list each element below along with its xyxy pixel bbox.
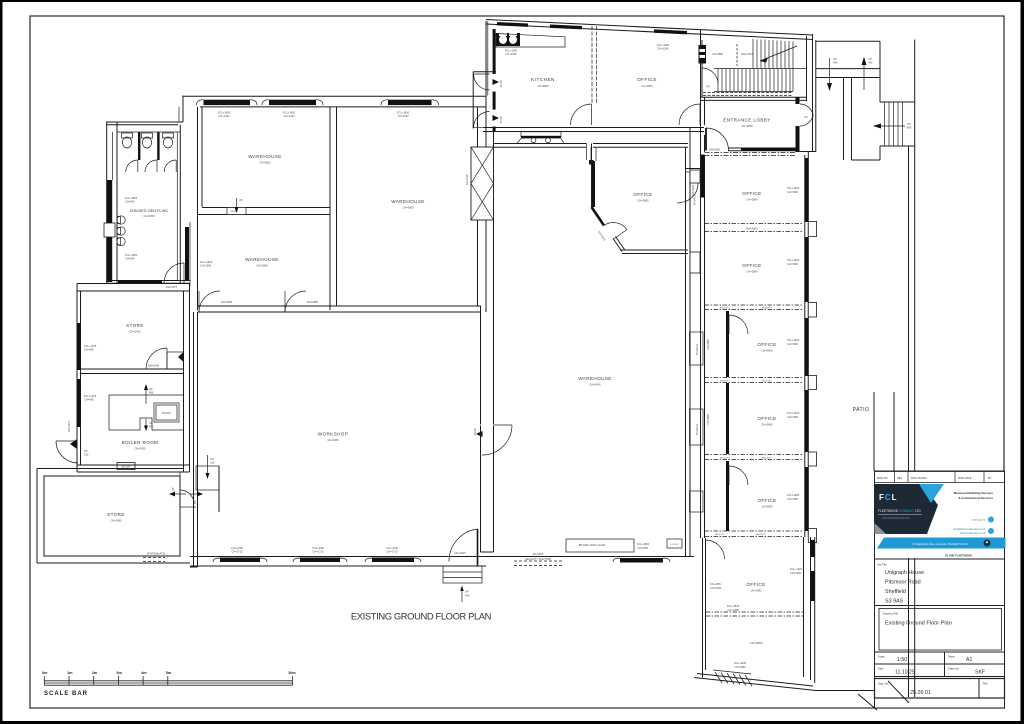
svg-text:BHxPxx: BHxPxx bbox=[231, 211, 238, 213]
svg-text:PATIO: PATIO bbox=[853, 407, 870, 413]
svg-text:SFxPDLBx4736: SFxPDLBx4736 bbox=[147, 552, 166, 556]
svg-text:CH=2695: CH=2695 bbox=[110, 519, 122, 523]
svg-text:www.fleetwoodconsult.co.uk: www.fleetwoodconsult.co.uk bbox=[882, 517, 910, 520]
svg-text:LOW BC: LOW BC bbox=[670, 544, 679, 546]
svg-text:CH=1080: CH=1080 bbox=[734, 665, 746, 669]
svg-text:2 Chapeltown Rise, Hanscote, S: 2 Chapeltown Rise, Hanscote, Sheffield S… bbox=[912, 542, 967, 546]
svg-text:FCL+1SB: FCL+1SB bbox=[231, 546, 243, 550]
svg-text:BD 6040 1190mmH/2H: BD 6040 1190mmH/2H bbox=[579, 543, 606, 547]
svg-text:450: 450 bbox=[149, 425, 154, 429]
svg-text:BH=1520: BH=1520 bbox=[465, 174, 469, 185]
svg-text:BHxDUTY: BHxDUTY bbox=[762, 381, 773, 383]
svg-text:STORE: STORE bbox=[126, 323, 144, 328]
svg-text:CH=2860: CH=2860 bbox=[761, 349, 773, 353]
svg-text:OFFICE: OFFICE bbox=[757, 342, 776, 347]
svg-text:REV: REV bbox=[897, 476, 903, 480]
svg-text:FCL+1285: FCL+1285 bbox=[657, 43, 670, 47]
svg-text:Measured Building Surveys: Measured Building Surveys bbox=[954, 491, 994, 495]
svg-text:KITCHEN: KITCHEN bbox=[531, 77, 555, 82]
svg-text:UP: UP bbox=[465, 590, 469, 594]
svg-text:CH=2860: CH=2860 bbox=[761, 423, 773, 427]
svg-text:4m: 4m bbox=[141, 671, 147, 675]
svg-text:CH=1280: CH=1280 bbox=[505, 52, 517, 56]
svg-text:CH=2865: CH=2865 bbox=[750, 641, 763, 645]
svg-text:CH=1590: CH=1590 bbox=[787, 497, 799, 501]
svg-text:DH=2865: DH=2865 bbox=[221, 300, 233, 304]
svg-text:& Architectural Services: & Architectural Services bbox=[958, 496, 993, 500]
svg-text:UP: UP bbox=[804, 115, 808, 119]
svg-text:BHxDUTY: BHxDUTY bbox=[762, 308, 773, 310]
svg-text:BHxDUTY: BHxDUTY bbox=[720, 458, 731, 460]
svg-text:CH=1715: CH=1715 bbox=[312, 550, 324, 554]
svg-text:SECURITY SHUTTER: SECURITY SHUTTER bbox=[525, 557, 551, 561]
svg-text:DISUSED GENTS WC: DISUSED GENTS WC bbox=[130, 209, 169, 213]
svg-text:UP: UP bbox=[706, 85, 710, 89]
svg-text:CH=2425: CH=2425 bbox=[134, 447, 146, 451]
svg-text:CH=3665: CH=3665 bbox=[402, 206, 414, 210]
svg-text:865: 865 bbox=[907, 126, 912, 130]
svg-text:MOD NO: MOD NO bbox=[877, 476, 888, 480]
svg-text:BOILER: BOILER bbox=[162, 412, 171, 415]
svg-text:Job Title: Job Title bbox=[877, 563, 887, 567]
svg-text:CH=2860: CH=2860 bbox=[637, 199, 649, 203]
svg-text:Drawn by: Drawn by bbox=[948, 667, 960, 671]
svg-text:UP 40: UP 40 bbox=[499, 80, 503, 88]
svg-text:CH=1590: CH=1590 bbox=[787, 342, 799, 346]
svg-text:FCL+1SB: FCL+1SB bbox=[386, 546, 398, 550]
svg-text:B HATCH: B HATCH bbox=[693, 194, 697, 205]
svg-text:FCL+1600: FCL+1600 bbox=[218, 111, 231, 115]
svg-text:MOD DATE: MOD DATE bbox=[958, 476, 972, 480]
svg-text:FCL+1600: FCL+1600 bbox=[397, 111, 410, 115]
svg-text:FCL+1620: FCL+1620 bbox=[790, 567, 803, 571]
svg-text:UP 40: UP 40 bbox=[499, 116, 503, 124]
svg-text:5m: 5m bbox=[166, 671, 172, 675]
svg-text:445: 445 bbox=[465, 594, 470, 598]
svg-text:BHxDUTY: BHxDUTY bbox=[715, 534, 726, 536]
svg-text:CH=1590: CH=1590 bbox=[787, 190, 799, 194]
svg-text:Sheet: Sheet bbox=[948, 655, 955, 659]
svg-text:11.10.25: 11.10.25 bbox=[895, 670, 915, 676]
svg-text:CH=2860: CH=2860 bbox=[746, 198, 758, 202]
svg-text:10m: 10m bbox=[288, 671, 296, 675]
svg-text:FCL+1620: FCL+1620 bbox=[787, 186, 800, 190]
svg-text:25.26.01: 25.26.01 bbox=[910, 690, 931, 696]
svg-text:CH=1285: CH=1285 bbox=[657, 47, 669, 51]
svg-text:Drawing Title: Drawing Title bbox=[883, 612, 899, 616]
svg-text:CH=2865: CH=2865 bbox=[750, 589, 762, 593]
svg-text:BHxDUTY: BHxDUTY bbox=[720, 308, 731, 310]
svg-text:FCL+1800: FCL+1800 bbox=[125, 196, 138, 200]
svg-text:BHxDUTY: BHxDUTY bbox=[720, 381, 731, 383]
svg-text:CH=1590: CH=1590 bbox=[787, 415, 799, 419]
svg-text:(?) 0487 FLEETWOOD: (?) 0487 FLEETWOOD bbox=[945, 554, 972, 558]
svg-text:CH=2465: CH=2465 bbox=[327, 438, 339, 442]
svg-text:OFFICE: OFFICE bbox=[757, 416, 776, 421]
svg-text:CH=2860: CH=2860 bbox=[706, 338, 710, 350]
svg-text:OFFICE: OFFICE bbox=[742, 263, 761, 268]
svg-text:CH=2860: CH=2860 bbox=[537, 84, 549, 88]
svg-text:SKF: SKF bbox=[975, 670, 985, 676]
svg-text:FCL+1620: FCL+1620 bbox=[787, 338, 800, 342]
svg-text:WAREHOUSE: WAREHOUSE bbox=[248, 154, 282, 159]
svg-text:DH=2065: DH=2065 bbox=[454, 551, 466, 555]
svg-text:UP: UP bbox=[84, 449, 88, 453]
svg-text:Dwg. No.: Dwg. No. bbox=[878, 682, 889, 686]
svg-text:CH=690: CH=690 bbox=[125, 200, 135, 204]
svg-text:FLEETWOOD CONSULT LTD: FLEETWOOD CONSULT LTD bbox=[878, 509, 921, 513]
svg-text:FCL+1620: FCL+1620 bbox=[787, 411, 800, 415]
svg-text:WORKSHOP: WORKSHOP bbox=[318, 432, 349, 437]
svg-text:CH=1590: CH=1590 bbox=[787, 262, 799, 266]
svg-text:Riser 50H: Riser 50H bbox=[741, 52, 753, 56]
svg-text:210: 210 bbox=[84, 453, 89, 457]
svg-text:UP: UP bbox=[149, 421, 153, 425]
svg-text:ENTRANCE LOBBY: ENTRANCE LOBBY bbox=[723, 118, 770, 123]
svg-text:0m: 0m bbox=[42, 671, 48, 675]
svg-text:FCL+1860: FCL+1860 bbox=[637, 542, 650, 546]
svg-text:CH=1080: CH=1080 bbox=[727, 608, 739, 612]
svg-text:0770 68 73: 0770 68 73 bbox=[972, 518, 986, 522]
svg-text:WAREHOUSE: WAREHOUSE bbox=[245, 257, 279, 262]
svg-text:FCL+1SB: FCL+1SB bbox=[312, 546, 324, 550]
svg-text:DH=2865: DH=2865 bbox=[307, 300, 319, 304]
svg-text:UP: UP bbox=[171, 487, 175, 491]
svg-text:685: 685 bbox=[149, 391, 154, 395]
svg-text:FCL+1620: FCL+1620 bbox=[787, 258, 800, 262]
svg-text:OFFICE: OFFICE bbox=[637, 77, 657, 82]
svg-text:WAREHOUSE: WAREHOUSE bbox=[578, 376, 612, 381]
svg-text:2m: 2m bbox=[92, 671, 98, 675]
svg-text:B HATCH: B HATCH bbox=[695, 344, 699, 355]
svg-text:WAREHOUSE: WAREHOUSE bbox=[391, 199, 425, 204]
svg-text:FCL+1600: FCL+1600 bbox=[283, 111, 296, 115]
svg-text:OFFICE: OFFICE bbox=[633, 192, 652, 197]
svg-text:FCL+1845: FCL+1845 bbox=[734, 661, 747, 665]
svg-text:CH=2860: CH=2860 bbox=[706, 413, 710, 425]
svg-text:OFFICE: OFFICE bbox=[742, 191, 761, 196]
svg-text:FCL+1845: FCL+1845 bbox=[200, 260, 213, 264]
svg-text:FCL+1620: FCL+1620 bbox=[787, 493, 800, 497]
svg-text:CH=1590: CH=1590 bbox=[790, 571, 802, 575]
svg-text:DH=1975: DH=1975 bbox=[166, 285, 178, 289]
svg-text:CH=2425: CH=2425 bbox=[129, 330, 141, 334]
svg-text:FCL: FCL bbox=[879, 493, 898, 502]
svg-text:UP: UP bbox=[149, 387, 153, 391]
svg-text:BHxDUTY: BHxDUTY bbox=[756, 534, 767, 536]
svg-text:FCL+1845: FCL+1845 bbox=[727, 604, 740, 608]
svg-text:CH=1430: CH=1430 bbox=[218, 114, 230, 118]
svg-text:CH=690: CH=690 bbox=[125, 257, 135, 261]
svg-text:1:50: 1:50 bbox=[897, 657, 907, 663]
svg-text:SFx4256: SFx4256 bbox=[533, 552, 544, 556]
svg-text:CH=2060: CH=2060 bbox=[637, 546, 649, 550]
svg-text:CH=2350: CH=2350 bbox=[143, 214, 155, 218]
svg-text:CH=1430: CH=1430 bbox=[283, 114, 295, 118]
svg-text:CH=2860: CH=2860 bbox=[641, 84, 653, 88]
svg-text:UP: UP bbox=[239, 198, 243, 202]
svg-text:UP: UP bbox=[833, 57, 837, 61]
svg-text:B HATCH: B HATCH bbox=[695, 424, 699, 435]
svg-text:Date: Date bbox=[878, 667, 884, 671]
svg-text:CH=3640: CH=3640 bbox=[589, 383, 601, 387]
svg-text:FCL+845: FCL+845 bbox=[710, 582, 721, 586]
svg-text:CH=2860: CH=2860 bbox=[741, 124, 753, 128]
svg-text:UP 95: UP 95 bbox=[473, 428, 477, 436]
svg-text:BOILER ROOM: BOILER ROOM bbox=[122, 440, 159, 445]
svg-text:DH=1590: DH=1590 bbox=[709, 148, 721, 152]
svg-text:UP: UP bbox=[210, 457, 214, 461]
svg-text:BHxDUTY: BHxDUTY bbox=[762, 458, 773, 460]
svg-text:UP: UP bbox=[868, 57, 872, 61]
svg-text:CH=2865: CH=2865 bbox=[256, 264, 268, 268]
svg-text:210: 210 bbox=[210, 461, 215, 465]
svg-text:SCALE BAR: SCALE BAR bbox=[44, 691, 88, 697]
svg-text:FCL+1575: FCL+1575 bbox=[84, 394, 97, 398]
svg-text:STORE: STORE bbox=[107, 512, 125, 517]
svg-text:UP: UP bbox=[907, 122, 911, 126]
svg-text:CH=2860: CH=2860 bbox=[746, 270, 758, 274]
svg-text:FCL+1800: FCL+1800 bbox=[125, 253, 138, 257]
svg-text:OFFICE: OFFICE bbox=[746, 582, 765, 587]
svg-text:CH=685: CH=685 bbox=[84, 348, 94, 352]
svg-text:450: 450 bbox=[833, 61, 838, 65]
svg-text:CH=685: CH=685 bbox=[84, 398, 94, 402]
svg-text:1m: 1m bbox=[67, 671, 73, 675]
svg-text:Unigraph House: Unigraph House bbox=[885, 570, 924, 576]
svg-text:3m: 3m bbox=[116, 671, 122, 675]
svg-text:CH=2880: CH=2880 bbox=[712, 52, 724, 56]
svg-text:info@fleetwoodstudio.co.uk: info@fleetwoodstudio.co.uk bbox=[953, 527, 985, 531]
svg-text:Sheffield: Sheffield bbox=[885, 589, 906, 595]
svg-text:Existing Ground Floor Plan: Existing Ground Floor Plan bbox=[885, 621, 952, 627]
svg-text:EXISTING GROUND FLOOR PLAN: EXISTING GROUND FLOOR PLAN bbox=[351, 611, 491, 622]
svg-text:A1: A1 bbox=[966, 657, 972, 663]
svg-text:S3 9AS: S3 9AS bbox=[885, 599, 904, 605]
svg-text:CH=1960: CH=1960 bbox=[200, 264, 212, 268]
svg-text:FCL+1575: FCL+1575 bbox=[84, 344, 97, 348]
svg-text:CH=1715: CH=1715 bbox=[386, 550, 398, 554]
svg-text:CH=1715: CH=1715 bbox=[231, 550, 243, 554]
svg-text:CH=1630: CH=1630 bbox=[397, 114, 409, 118]
svg-text:UP: UP bbox=[193, 500, 197, 504]
svg-text:BY: BY bbox=[988, 476, 992, 480]
svg-text:CH=2860: CH=2860 bbox=[761, 505, 773, 509]
svg-text:MOD NOTES: MOD NOTES bbox=[911, 476, 927, 480]
svg-text:Rev: Rev bbox=[983, 682, 988, 686]
svg-text:DH=1975: DH=1975 bbox=[67, 420, 71, 432]
svg-text:BH=2060: BH=2060 bbox=[747, 227, 758, 231]
svg-text:DH=1945: DH=1945 bbox=[148, 364, 160, 368]
svg-text:CH=4105: CH=4105 bbox=[710, 586, 722, 590]
svg-text:fleetwoodstudio.co.uk: fleetwoodstudio.co.uk bbox=[960, 531, 986, 535]
svg-text:450: 450 bbox=[868, 61, 873, 65]
svg-text:Scale: Scale bbox=[878, 655, 885, 659]
svg-text:CH=2865: CH=2865 bbox=[259, 161, 271, 165]
svg-text:FCL+1280: FCL+1280 bbox=[505, 49, 518, 53]
svg-text:Pitsmoor Road: Pitsmoor Road bbox=[885, 580, 921, 586]
svg-text:OFFICE: OFFICE bbox=[757, 498, 776, 503]
